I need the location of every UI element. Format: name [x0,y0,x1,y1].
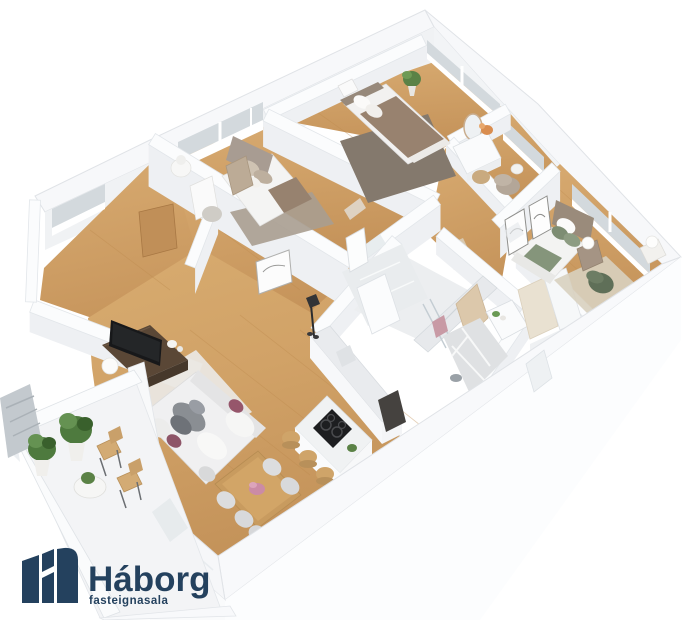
svg-text:Háborg: Háborg [88,560,211,599]
svg-text:fasteignasala: fasteignasala [89,595,168,607]
